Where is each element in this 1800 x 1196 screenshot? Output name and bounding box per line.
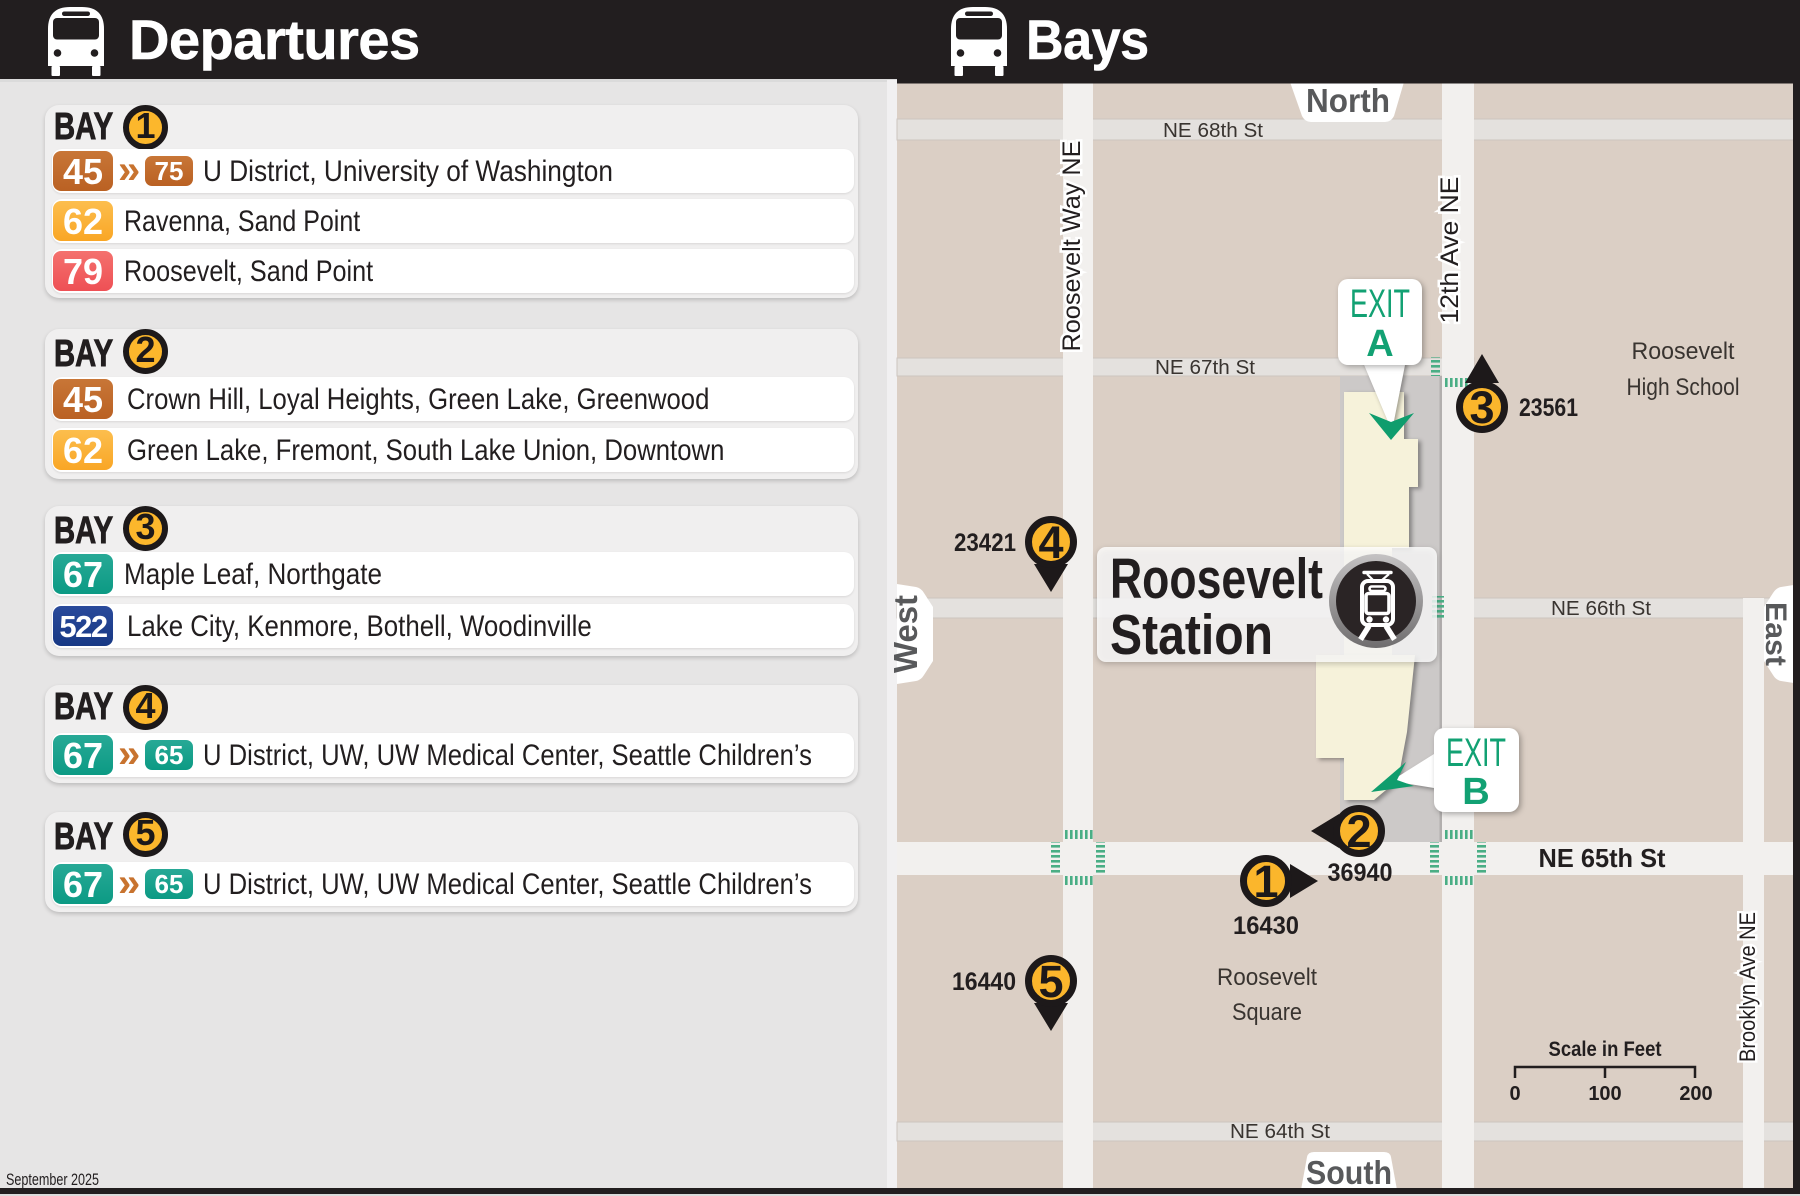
svg-text:3: 3	[1469, 382, 1494, 433]
svg-text:NE 65th St: NE 65th St	[1539, 843, 1666, 873]
svg-text:2: 2	[1346, 806, 1371, 857]
svg-text:NE 64th St: NE 64th St	[1230, 1121, 1330, 1143]
svg-text:4: 4	[1038, 517, 1063, 568]
svg-text:West: West	[887, 595, 924, 673]
svg-text:12th Ave NE: 12th Ave NE	[1436, 177, 1464, 324]
svg-text:5: 5	[1038, 956, 1063, 1007]
svg-text:NE 66th St: NE 66th St	[1551, 598, 1651, 620]
svg-text:16440: 16440	[952, 968, 1016, 996]
svg-text:Scale in Feet: Scale in Feet	[1549, 1038, 1662, 1061]
svg-text:North: North	[1306, 82, 1390, 119]
svg-text:South: South	[1306, 1154, 1392, 1191]
svg-text:EXIT: EXIT	[1446, 731, 1506, 775]
svg-text:EXIT: EXIT	[1350, 282, 1410, 326]
svg-text:Roosevelt: Roosevelt	[1632, 338, 1735, 365]
svg-text:1: 1	[1253, 856, 1278, 907]
svg-text:23561: 23561	[1519, 394, 1578, 422]
svg-text:High School: High School	[1627, 374, 1740, 401]
svg-text:Roosevelt Way NE: Roosevelt Way NE	[1058, 141, 1086, 352]
svg-text:A: A	[1366, 323, 1393, 365]
svg-text:B: B	[1462, 771, 1489, 813]
svg-text:16430: 16430	[1233, 912, 1299, 940]
svg-text:100: 100	[1588, 1083, 1621, 1105]
svg-text:Station: Station	[1110, 603, 1273, 667]
svg-text:East: East	[1759, 602, 1792, 666]
svg-text:Square: Square	[1232, 999, 1302, 1026]
svg-text:0: 0	[1509, 1083, 1520, 1105]
svg-text:Roosevelt: Roosevelt	[1110, 547, 1323, 611]
svg-text:Brooklyn Ave NE: Brooklyn Ave NE	[1735, 912, 1760, 1062]
svg-text:NE 68th St: NE 68th St	[1163, 120, 1263, 142]
svg-text:Roosevelt: Roosevelt	[1217, 964, 1317, 991]
svg-text:NE 67th St: NE 67th St	[1155, 357, 1255, 379]
svg-text:36940: 36940	[1328, 859, 1393, 887]
svg-text:200: 200	[1679, 1083, 1712, 1105]
svg-text:23421: 23421	[954, 529, 1016, 557]
